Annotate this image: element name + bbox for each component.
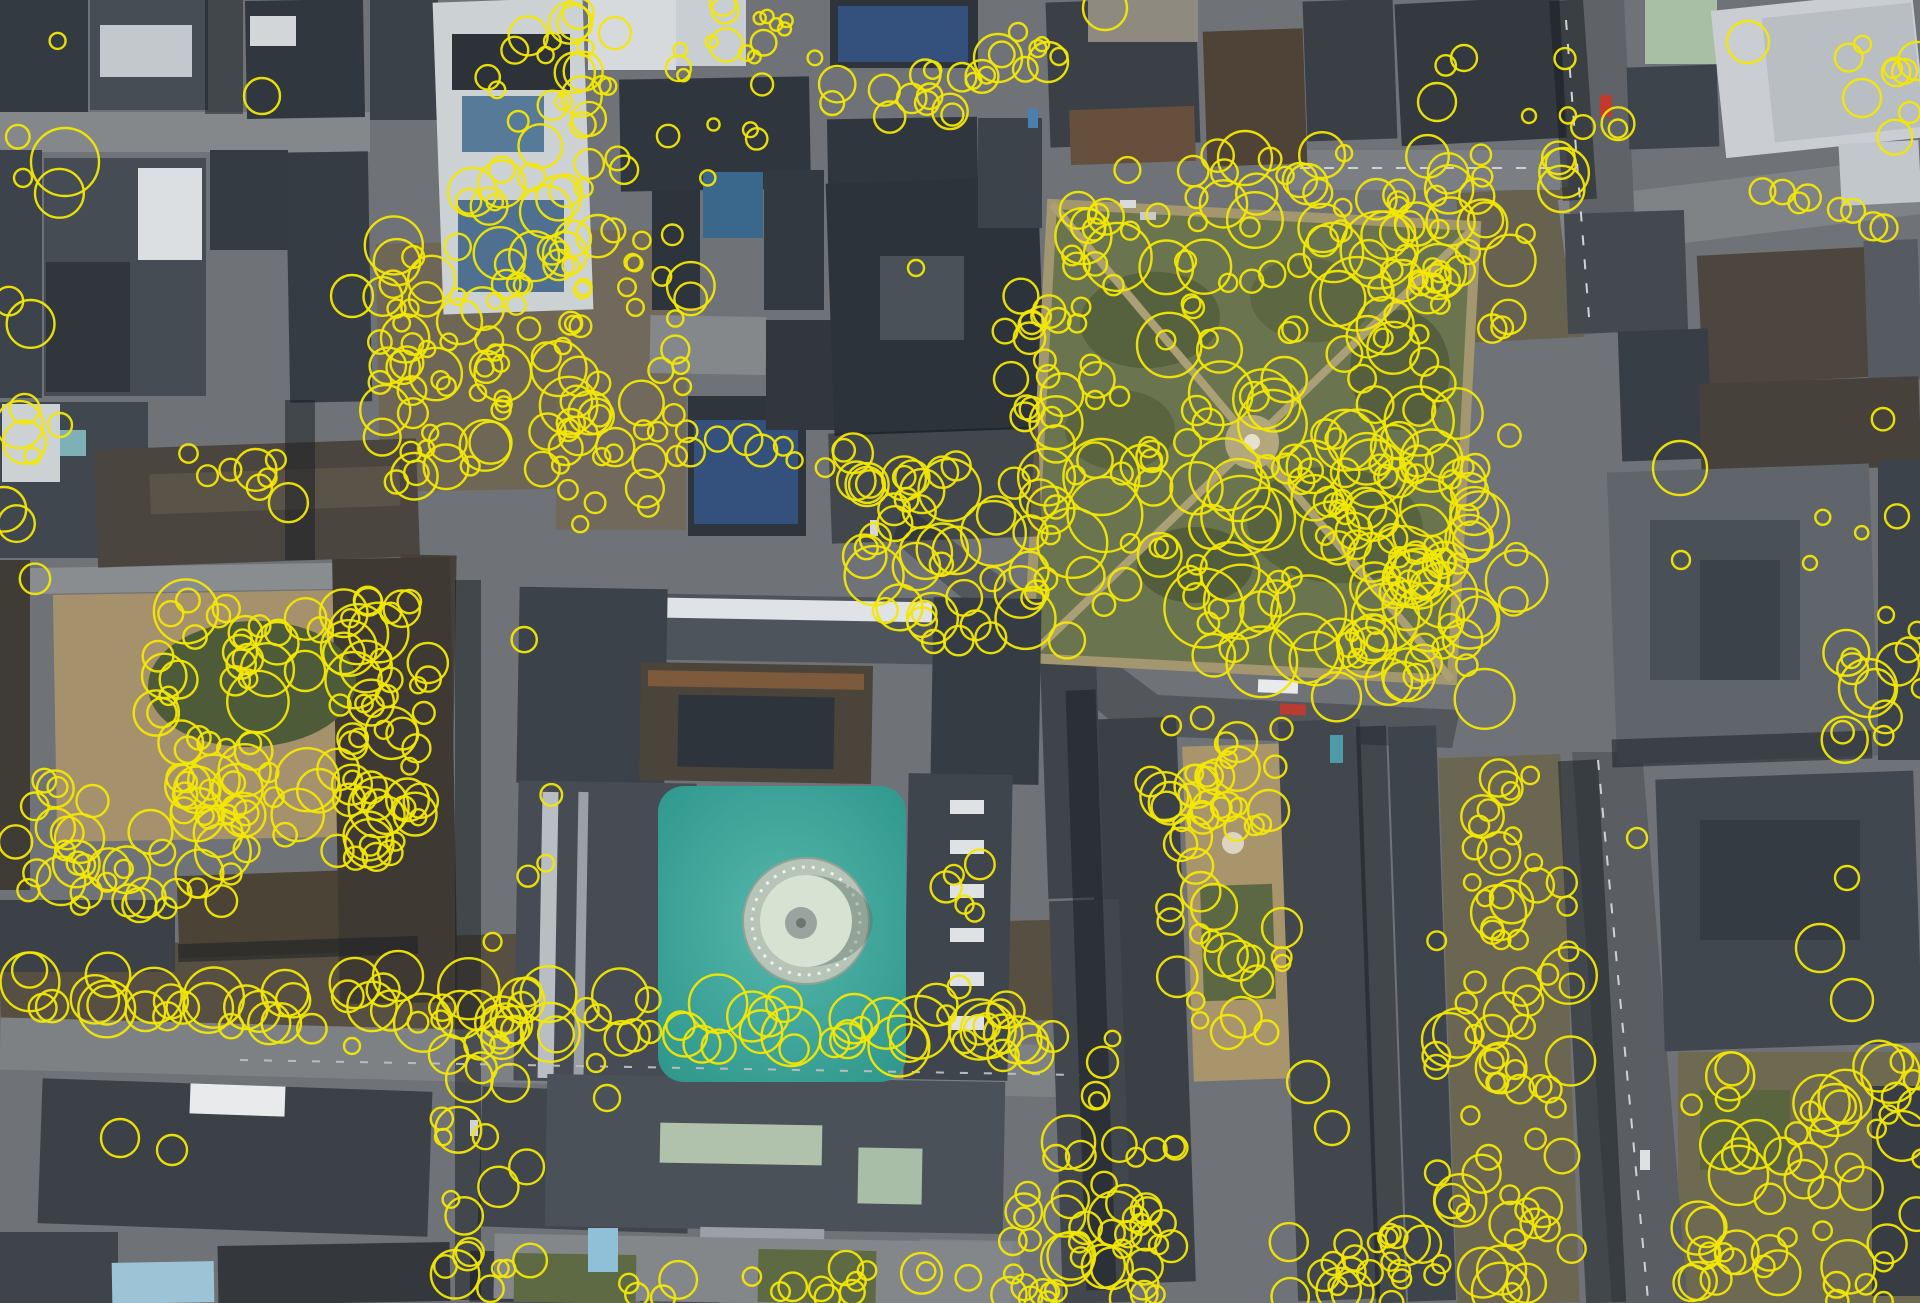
building-block: [1645, 0, 1717, 64]
vehicle: [1028, 108, 1038, 128]
building-block: [250, 16, 296, 46]
museum-ne-block: [930, 597, 1041, 785]
building-block: [978, 118, 1042, 228]
building-block: [838, 6, 968, 62]
ground-patch: [0, 112, 370, 152]
building-block: [880, 256, 964, 340]
building-block: [218, 1242, 451, 1303]
building-block: [1303, 0, 1398, 142]
building-block: [370, 0, 438, 120]
building-block: [588, 0, 676, 70]
cast-shadow: [285, 400, 315, 560]
building-block: [138, 168, 202, 260]
screenshot-root: [0, 0, 1920, 1303]
building-block: [190, 1083, 286, 1116]
building-block: [766, 320, 836, 430]
museum-skylight: [950, 928, 984, 942]
cast-shadow: [205, 0, 243, 114]
museum-layer: [493, 587, 1041, 1303]
ground-patch: [1200, 884, 1276, 1001]
building-block: [210, 150, 288, 250]
building-block: [764, 170, 824, 310]
building-block: [1627, 64, 1720, 149]
vehicle: [1120, 200, 1136, 208]
vehicle: [1330, 735, 1343, 763]
building-block: [1564, 210, 1688, 334]
cast-shadow: [455, 580, 481, 1300]
vehicle: [1640, 1150, 1650, 1170]
museum-canopy: [588, 1228, 618, 1272]
museum-south-green1: [660, 1123, 823, 1166]
building-block: [703, 172, 763, 238]
museum-south-green2: [858, 1147, 923, 1204]
building-block: [60, 430, 86, 456]
building-block: [46, 262, 130, 392]
building-block: [694, 420, 798, 524]
building-block: [100, 25, 192, 77]
building-block: [1088, 0, 1198, 42]
building-block: [0, 0, 88, 112]
building-block: [1698, 376, 1920, 474]
dome-hub: [796, 918, 806, 928]
building-block: [1203, 28, 1308, 166]
building-block: [112, 1261, 215, 1303]
building-block: [0, 1232, 118, 1303]
building-block: [1394, 0, 1566, 146]
museum-edward-core: [677, 695, 834, 770]
museum-skylight: [950, 800, 984, 814]
aerial-photo: [0, 0, 1920, 1303]
building-block: [1864, 239, 1920, 381]
building-block: [1618, 328, 1712, 461]
building-block: [1069, 106, 1196, 165]
building-block: [462, 96, 544, 152]
building-block: [0, 560, 30, 890]
building-block: [1762, 3, 1920, 143]
vehicle: [1280, 704, 1306, 716]
building-block: [1700, 560, 1780, 680]
museum-skylight: [950, 840, 984, 854]
building-block: [650, 315, 767, 375]
